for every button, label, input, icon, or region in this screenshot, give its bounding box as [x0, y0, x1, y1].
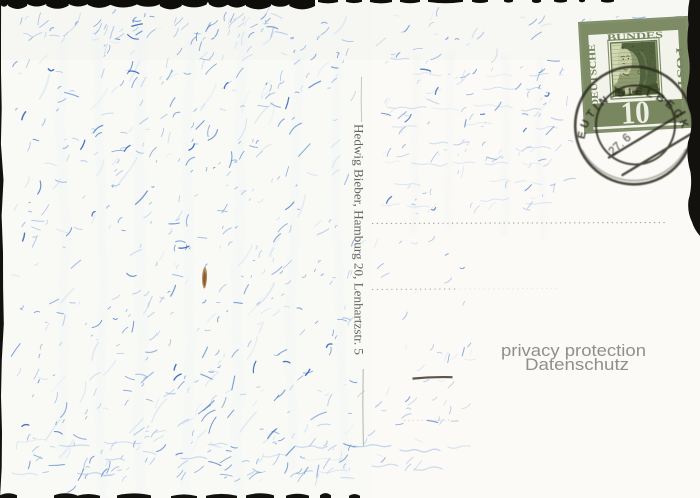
svg-text:Datenschutz: Datenschutz: [525, 356, 629, 374]
svg-text:Hedwig Bieber, Hamburg 20, Len: Hedwig Bieber, Hamburg 20, Lenhartzstr. …: [352, 124, 366, 355]
